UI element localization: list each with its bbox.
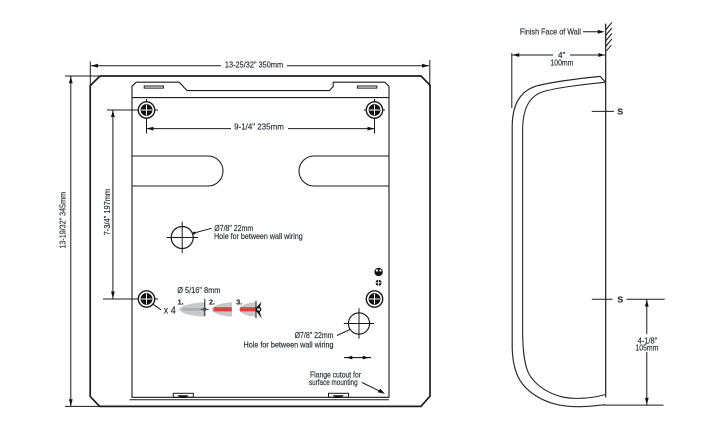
svg-text:surface mounting: surface mounting — [309, 378, 358, 387]
svg-text:Ø7/8" 22mm: Ø7/8" 22mm — [295, 331, 334, 340]
svg-text:Hole for between wall wiring: Hole for between wall wiring — [214, 232, 303, 241]
svg-text:7-3/4" 197mm: 7-3/4" 197mm — [103, 189, 112, 236]
svg-text:100mm: 100mm — [550, 58, 573, 67]
svg-text:Finish Face of Wall: Finish Face of Wall — [520, 28, 581, 37]
svg-text:S: S — [617, 106, 623, 116]
svg-text:9-1/4" 235mm: 9-1/4" 235mm — [234, 122, 284, 131]
svg-text:2.: 2. — [209, 297, 215, 306]
svg-text:Ø 5/16" 8mm: Ø 5/16" 8mm — [177, 286, 220, 295]
svg-text:1.: 1. — [178, 297, 184, 306]
svg-text:3.: 3. — [236, 297, 242, 306]
svg-text:105mm: 105mm — [635, 344, 658, 353]
svg-text:13-19/32" 345mm: 13-19/32" 345mm — [58, 192, 67, 249]
svg-text:13-25/32" 350mm: 13-25/32" 350mm — [225, 60, 283, 69]
svg-text:Hole for between wall wiring: Hole for between wall wiring — [244, 340, 334, 349]
svg-text:S: S — [617, 295, 623, 305]
svg-text:x 4: x 4 — [164, 306, 176, 317]
